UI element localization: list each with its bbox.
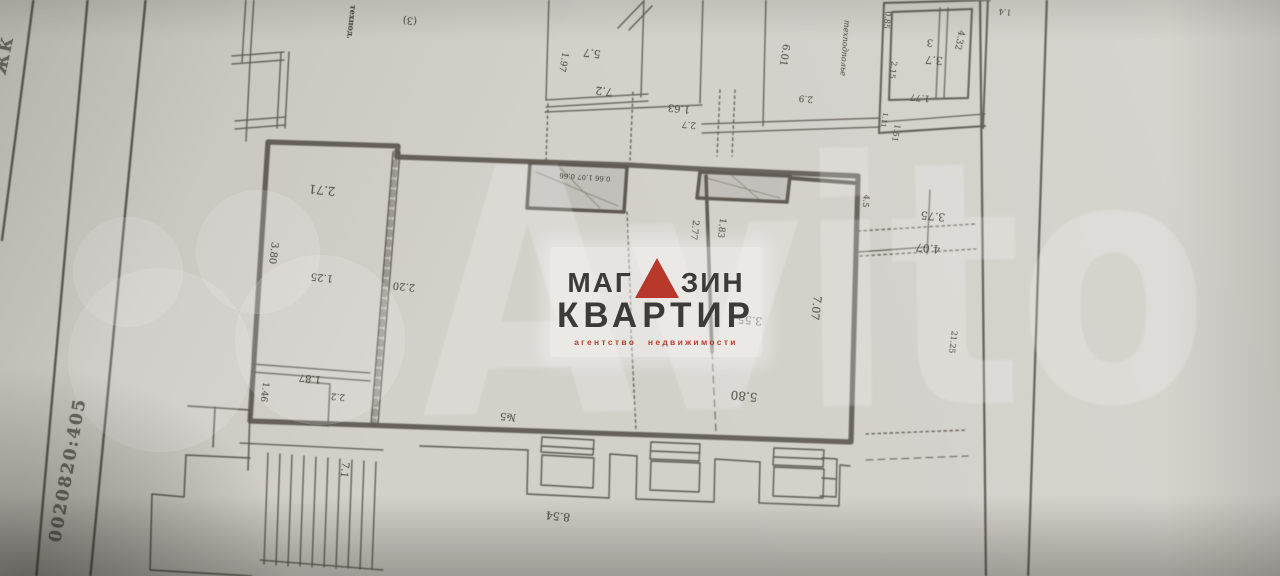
dimension-label: 8.54 — [545, 508, 571, 523]
dimension-label: 1.25 — [310, 270, 333, 283]
logo-tagline: агентство недвижимости — [574, 337, 738, 347]
logo-text-zin: ЗИН — [681, 269, 745, 297]
dimension-label: (3) — [402, 14, 417, 26]
dimension-label: 5.80 — [730, 388, 758, 405]
dimension-label: 3.7 — [925, 53, 944, 68]
logo-triangle-icon — [635, 258, 679, 298]
dimension-label: 2.9 — [798, 92, 813, 103]
dimension-label: 2.2 — [330, 390, 345, 401]
dimension-label: 3 — [926, 36, 933, 48]
dimension-label: 1.63 — [667, 101, 690, 114]
logo-line-kvartir: КВАРТИР — [557, 298, 755, 333]
dimension-label: 2.71 — [308, 182, 336, 199]
dimension-label: 4.07 — [915, 240, 941, 255]
dimension-label: №5 — [500, 410, 517, 423]
dimension-label: 1.4 — [998, 7, 1012, 17]
dimension-label: 7.2 — [595, 83, 614, 98]
dimension-label: 4.5 — [861, 194, 871, 208]
dimension-label: 2.20 — [392, 279, 415, 292]
agency-logo: МАГ ЗИН КВАРТИР агентство недвижимости — [550, 247, 762, 357]
dimension-label: 1.77 — [910, 91, 931, 103]
dimension-label: 7.1 — [338, 461, 351, 478]
logo-text-mag: МАГ — [567, 269, 632, 297]
dimension-label: 2.7 — [681, 118, 696, 129]
floorplan-photo: Avito техпод.(3)1.975.77.21.632.76.012.9… — [0, 0, 1280, 576]
dimension-label: 5.7 — [583, 45, 602, 60]
dimension-label: 3.75 — [920, 208, 946, 223]
dimension-label: 1.87 — [298, 371, 321, 384]
logo-line-magazin: МАГ ЗИН — [567, 258, 744, 297]
